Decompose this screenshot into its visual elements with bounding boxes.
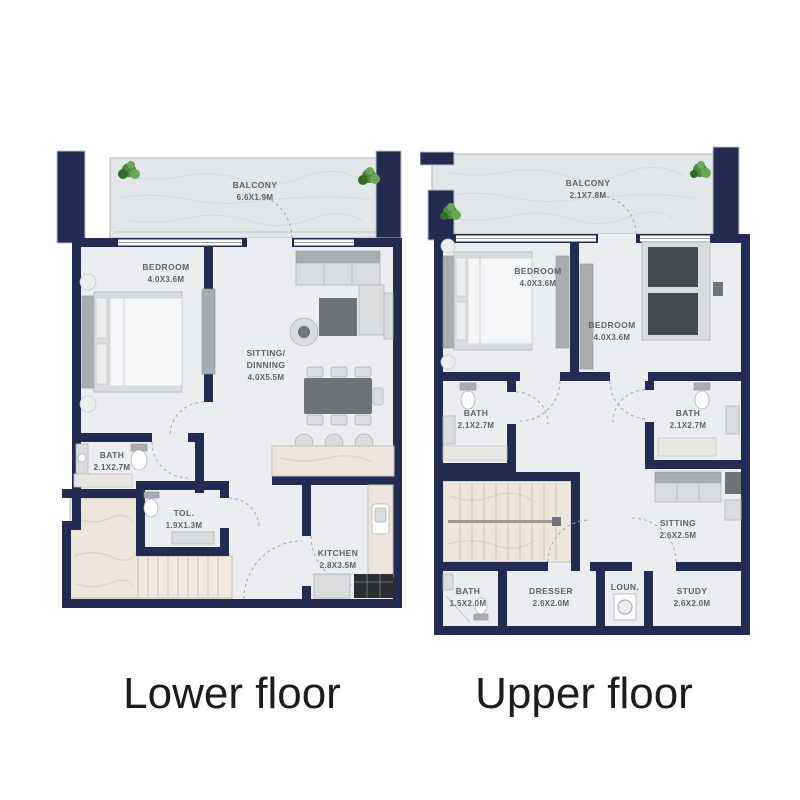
room-label-study: STUDY [677, 586, 708, 596]
floor-plan-sheet: BALCONY 6.6X1.9M BEDROOM 4.0X3.6M SITTIN… [0, 0, 800, 800]
room-dims-bath: 2.1X2.7M [94, 463, 131, 472]
room-label-balcony: BALCONY [233, 180, 278, 190]
lower-floor-plan: BALCONY 6.6X1.9M BEDROOM 4.0X3.6M SITTIN… [54, 146, 410, 666]
room-dims-bath-right: 2.1X2.7M [670, 421, 707, 430]
room-dims-balcony: 2.1X7.8M [570, 191, 607, 200]
room-label-bath-left: BATH [464, 408, 489, 418]
room-label-bedroom: BEDROOM [142, 262, 189, 272]
room-label-bedroom-left: BEDROOM [514, 266, 561, 276]
upper-floor-caption: Upper floor [404, 670, 764, 718]
upper-stairs [443, 481, 571, 562]
room-dims-tol: 1.9X1.3M [166, 521, 203, 530]
room-label-balcony: BALCONY [566, 178, 611, 188]
room-dims-bath-bottom: 1.5X2.0M [450, 599, 487, 608]
upper-bed-left [441, 239, 532, 369]
lower-tv-table [319, 298, 357, 336]
lower-wardrobe [202, 289, 215, 374]
room-label-sitting-dining-2: DINNING [247, 360, 286, 370]
room-label-bath: BATH [100, 450, 125, 460]
room-dims-bedroom-left: 4.0X3.6M [520, 279, 557, 288]
room-dims-bath-left: 2.1X2.7M [458, 421, 495, 430]
lower-floor-caption: Lower floor [54, 670, 410, 718]
room-dims-study: 2.6X2.0M [674, 599, 711, 608]
room-label-sitting: SITTING [660, 518, 696, 528]
lower-stairs [138, 556, 232, 598]
lower-bed [80, 274, 182, 412]
room-dims-balcony: 6.6X1.9M [237, 193, 274, 202]
washer-icon [614, 594, 636, 620]
room-dims-sitting: 2.6X2.5M [660, 531, 697, 540]
lower-tv-console [384, 293, 393, 339]
room-label-bedroom-right: BEDROOM [588, 320, 635, 330]
room-dims-bedroom-right: 4.0X3.6M [594, 333, 631, 342]
room-label-dresser: DRESSER [529, 586, 573, 596]
room-label-bath-right: BATH [676, 408, 701, 418]
room-label-bath-bottom: BATH [456, 586, 481, 596]
room-label-laundry: LOUN. [611, 582, 639, 592]
room-label-kitchen: KITCHEN [318, 548, 359, 558]
room-label-sitting-dining: SITTING/ [246, 348, 285, 358]
upper-floor-plan: BALCONY 2.1X7.8M BEDROOM 4.0X3.6M BEDROO… [420, 144, 776, 664]
room-dims-kitchen: 2.8X3.5M [320, 561, 357, 570]
room-dims-bedroom: 4.0X3.6M [148, 275, 185, 284]
room-dims-sitting-dining: 4.0X5.5M [248, 373, 285, 382]
room-label-tol: TOL. [174, 508, 195, 518]
upper-wardrobe-right [580, 264, 593, 369]
room-dims-dresser: 2.6X2.0M [533, 599, 570, 608]
lower-dining-table [304, 367, 383, 425]
